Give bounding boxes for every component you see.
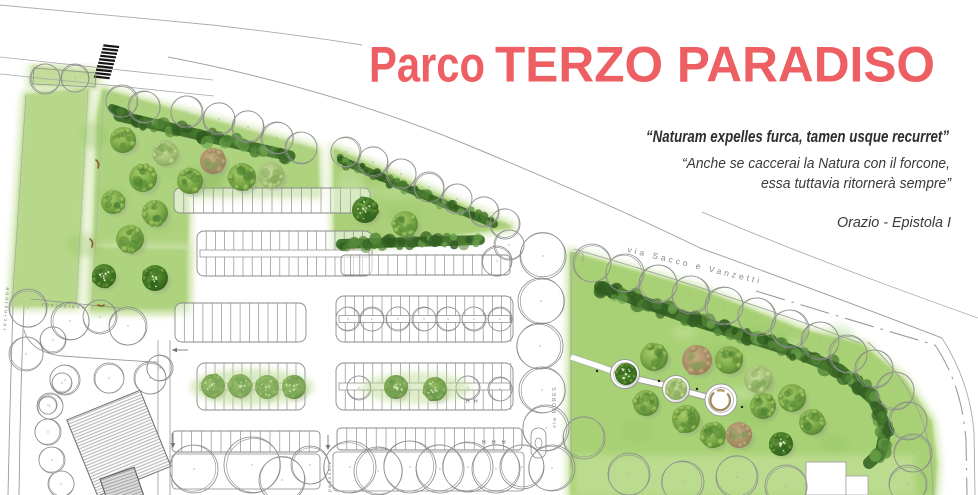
svg-text:Parco: Parco — [369, 36, 485, 93]
svg-text:H: H — [474, 399, 478, 405]
svg-text:pedonale: pedonale — [327, 460, 333, 492]
svg-text:H: H — [466, 399, 470, 405]
svg-text:H: H — [482, 440, 486, 446]
svg-text:essa tuttavia ritornerà sempre: essa tuttavia ritornerà sempre” — [761, 176, 952, 192]
svg-text:“Naturam expelles furca, tamen: “Naturam expelles furca, tamen usque rec… — [646, 127, 949, 146]
svg-text:Orazio - Epistola I: Orazio - Epistola I — [837, 214, 951, 231]
svg-text:H: H — [502, 440, 506, 446]
svg-text:TERZO PARADISO: TERZO PARADISO — [495, 36, 935, 93]
svg-text:“Anche se caccerai la Natura c: “Anche se caccerai la Natura con il forc… — [682, 156, 950, 172]
